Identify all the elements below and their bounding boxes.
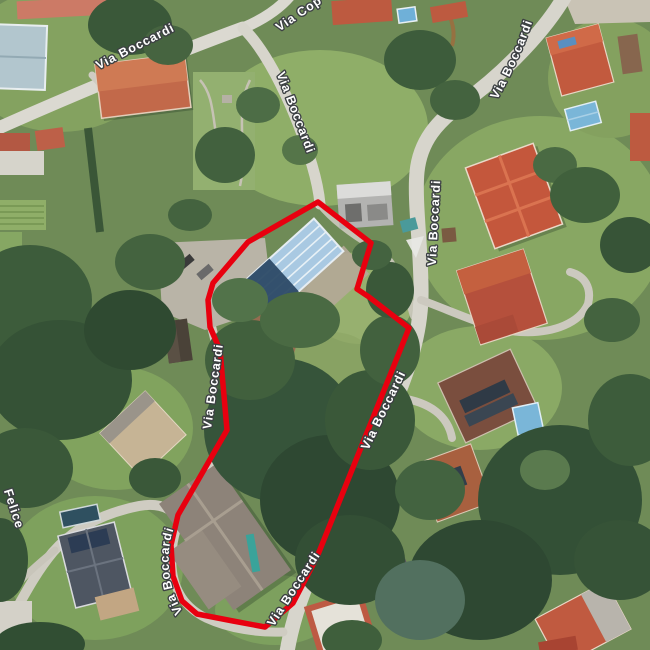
building-small-red-2 xyxy=(35,127,66,151)
building-red-roof-top-1 xyxy=(331,0,393,25)
shed-brown xyxy=(441,227,456,242)
gravel-area xyxy=(565,0,650,24)
building-right-edge xyxy=(630,113,650,161)
map-svg: Via Boccardi Via Cop Via Boccardi Via Bo… xyxy=(0,0,650,650)
pool-top-1 xyxy=(397,7,417,23)
building-industrial-teal xyxy=(0,24,47,90)
satellite-map[interactable]: Via Boccardi Via Cop Via Boccardi Via Bo… xyxy=(0,0,650,650)
building-white-1 xyxy=(0,151,44,175)
